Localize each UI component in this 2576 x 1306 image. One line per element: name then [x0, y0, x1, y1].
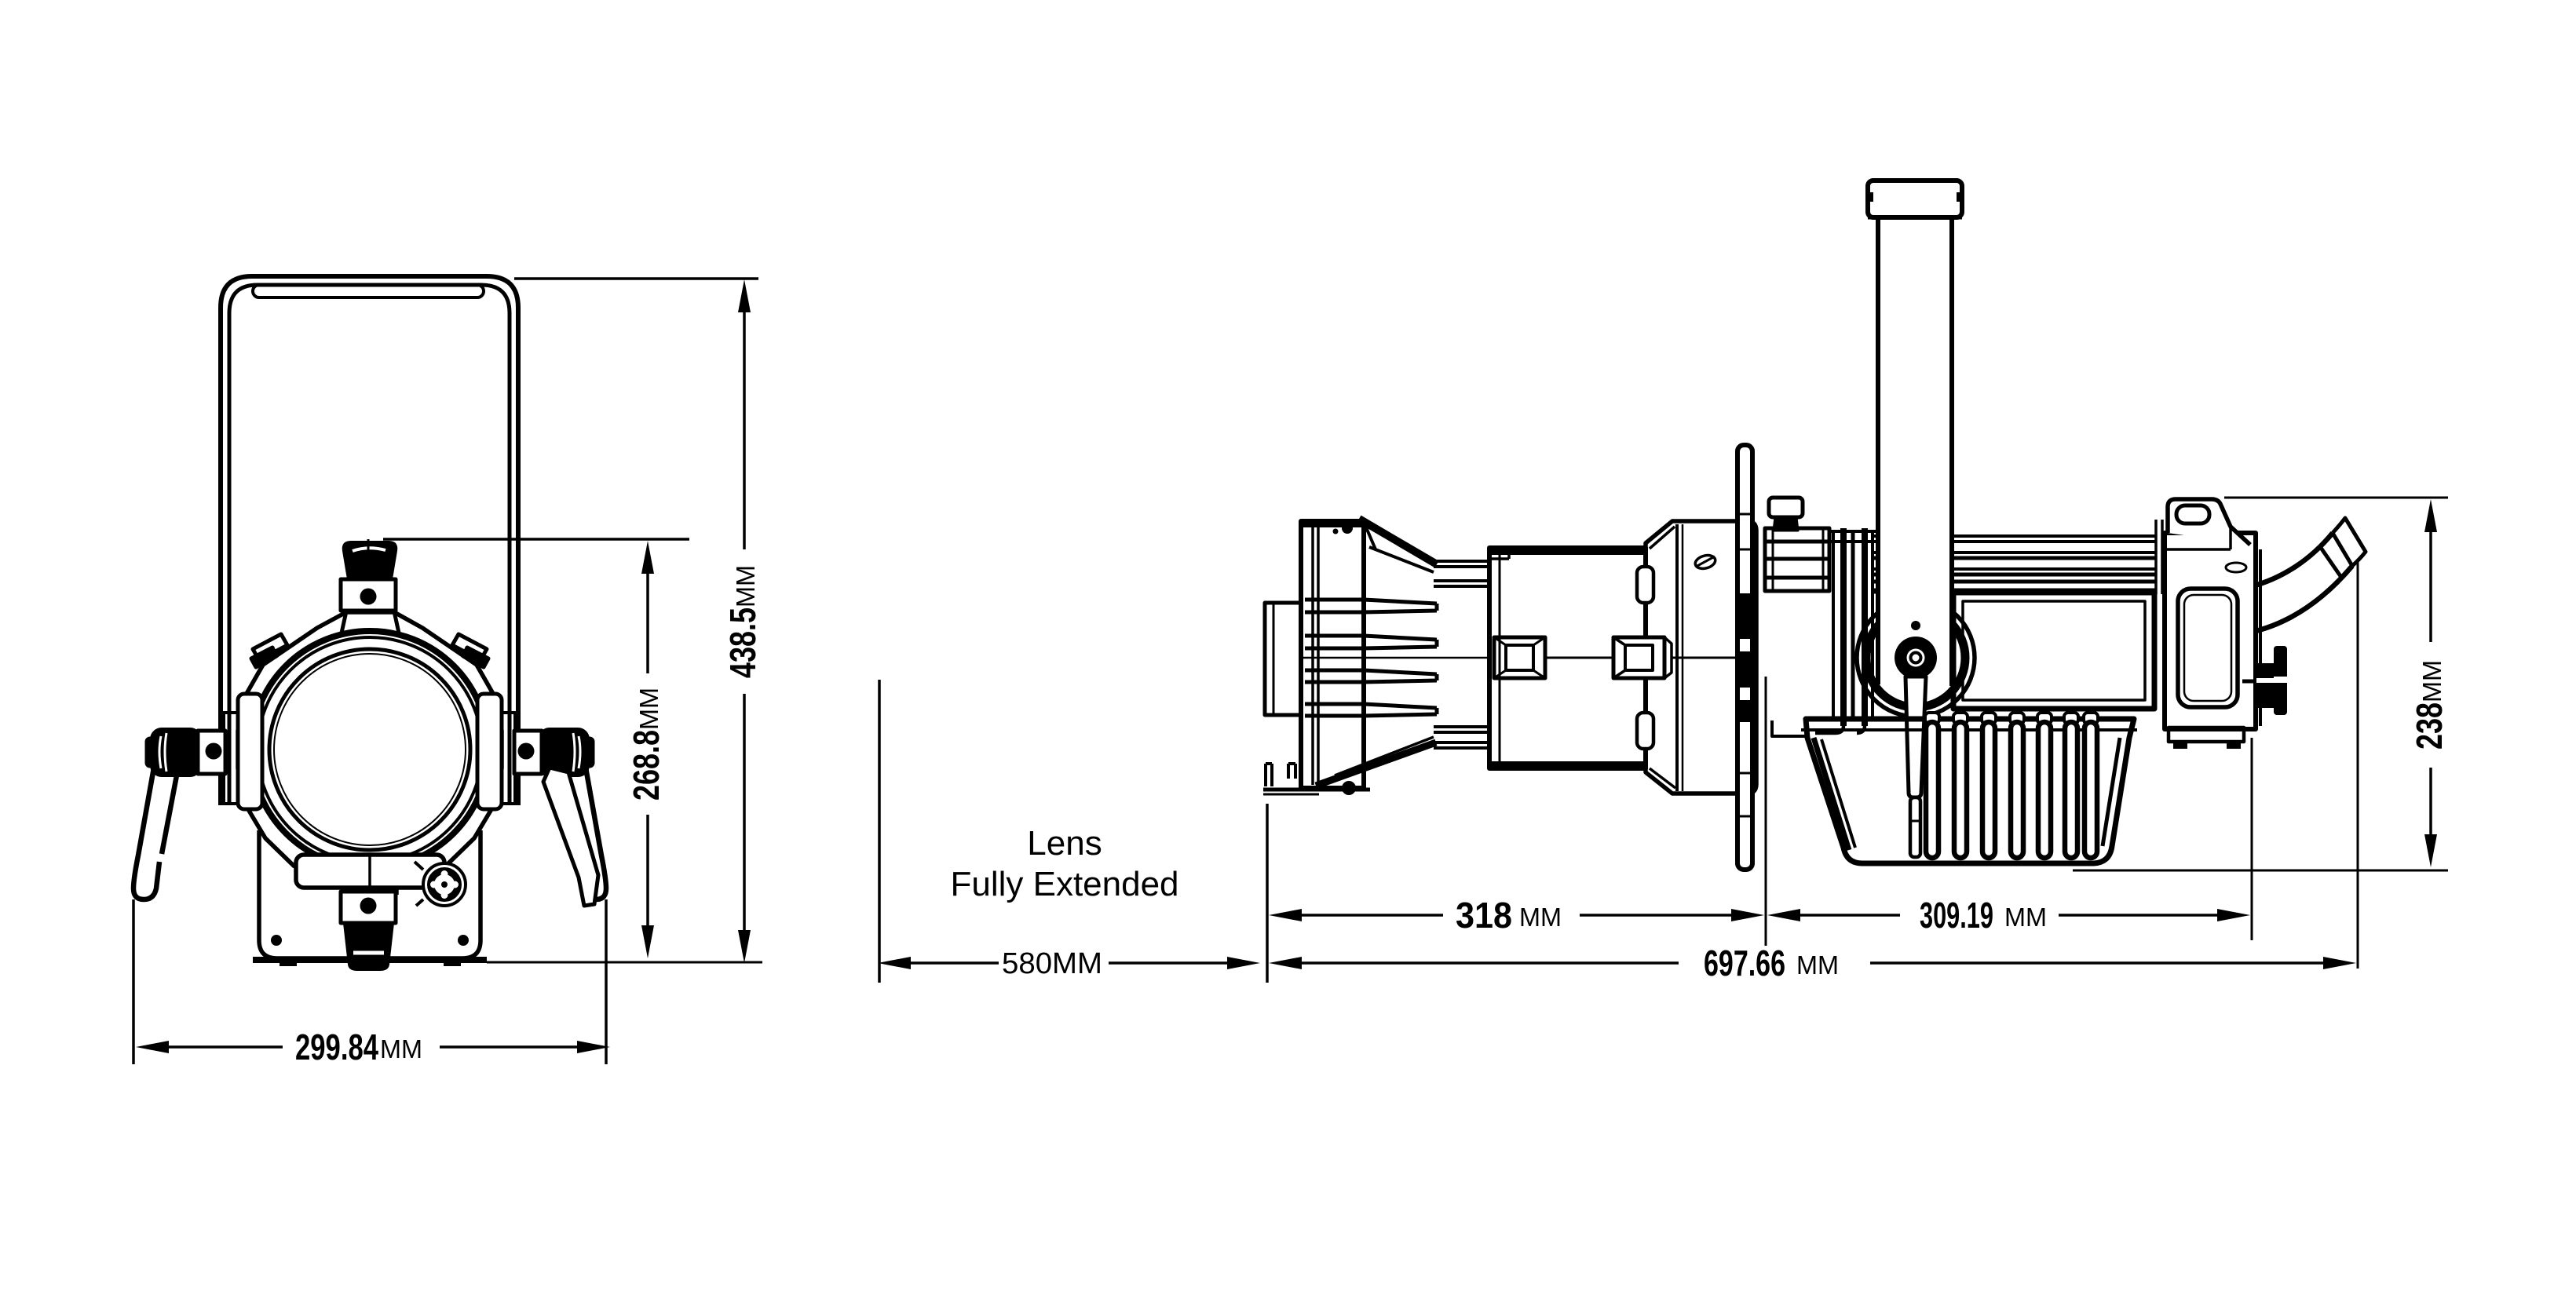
svg-text:580MM: 580MM [1002, 947, 1102, 980]
svg-text:697.66: 697.66 [1704, 943, 1785, 983]
svg-text:MM: MM [1519, 903, 1562, 932]
svg-text:MM: MM [2004, 903, 2047, 932]
svg-text:Fully Extended: Fully Extended [950, 865, 1178, 903]
svg-text:318: 318 [1456, 895, 1512, 936]
svg-text:Lens: Lens [1027, 824, 1102, 863]
svg-text:MM: MM [1796, 950, 1839, 979]
svg-text:MM: MM [380, 1034, 422, 1063]
svg-text:299.84: 299.84 [295, 1027, 378, 1067]
svg-text:309.19: 309.19 [1920, 895, 1993, 936]
